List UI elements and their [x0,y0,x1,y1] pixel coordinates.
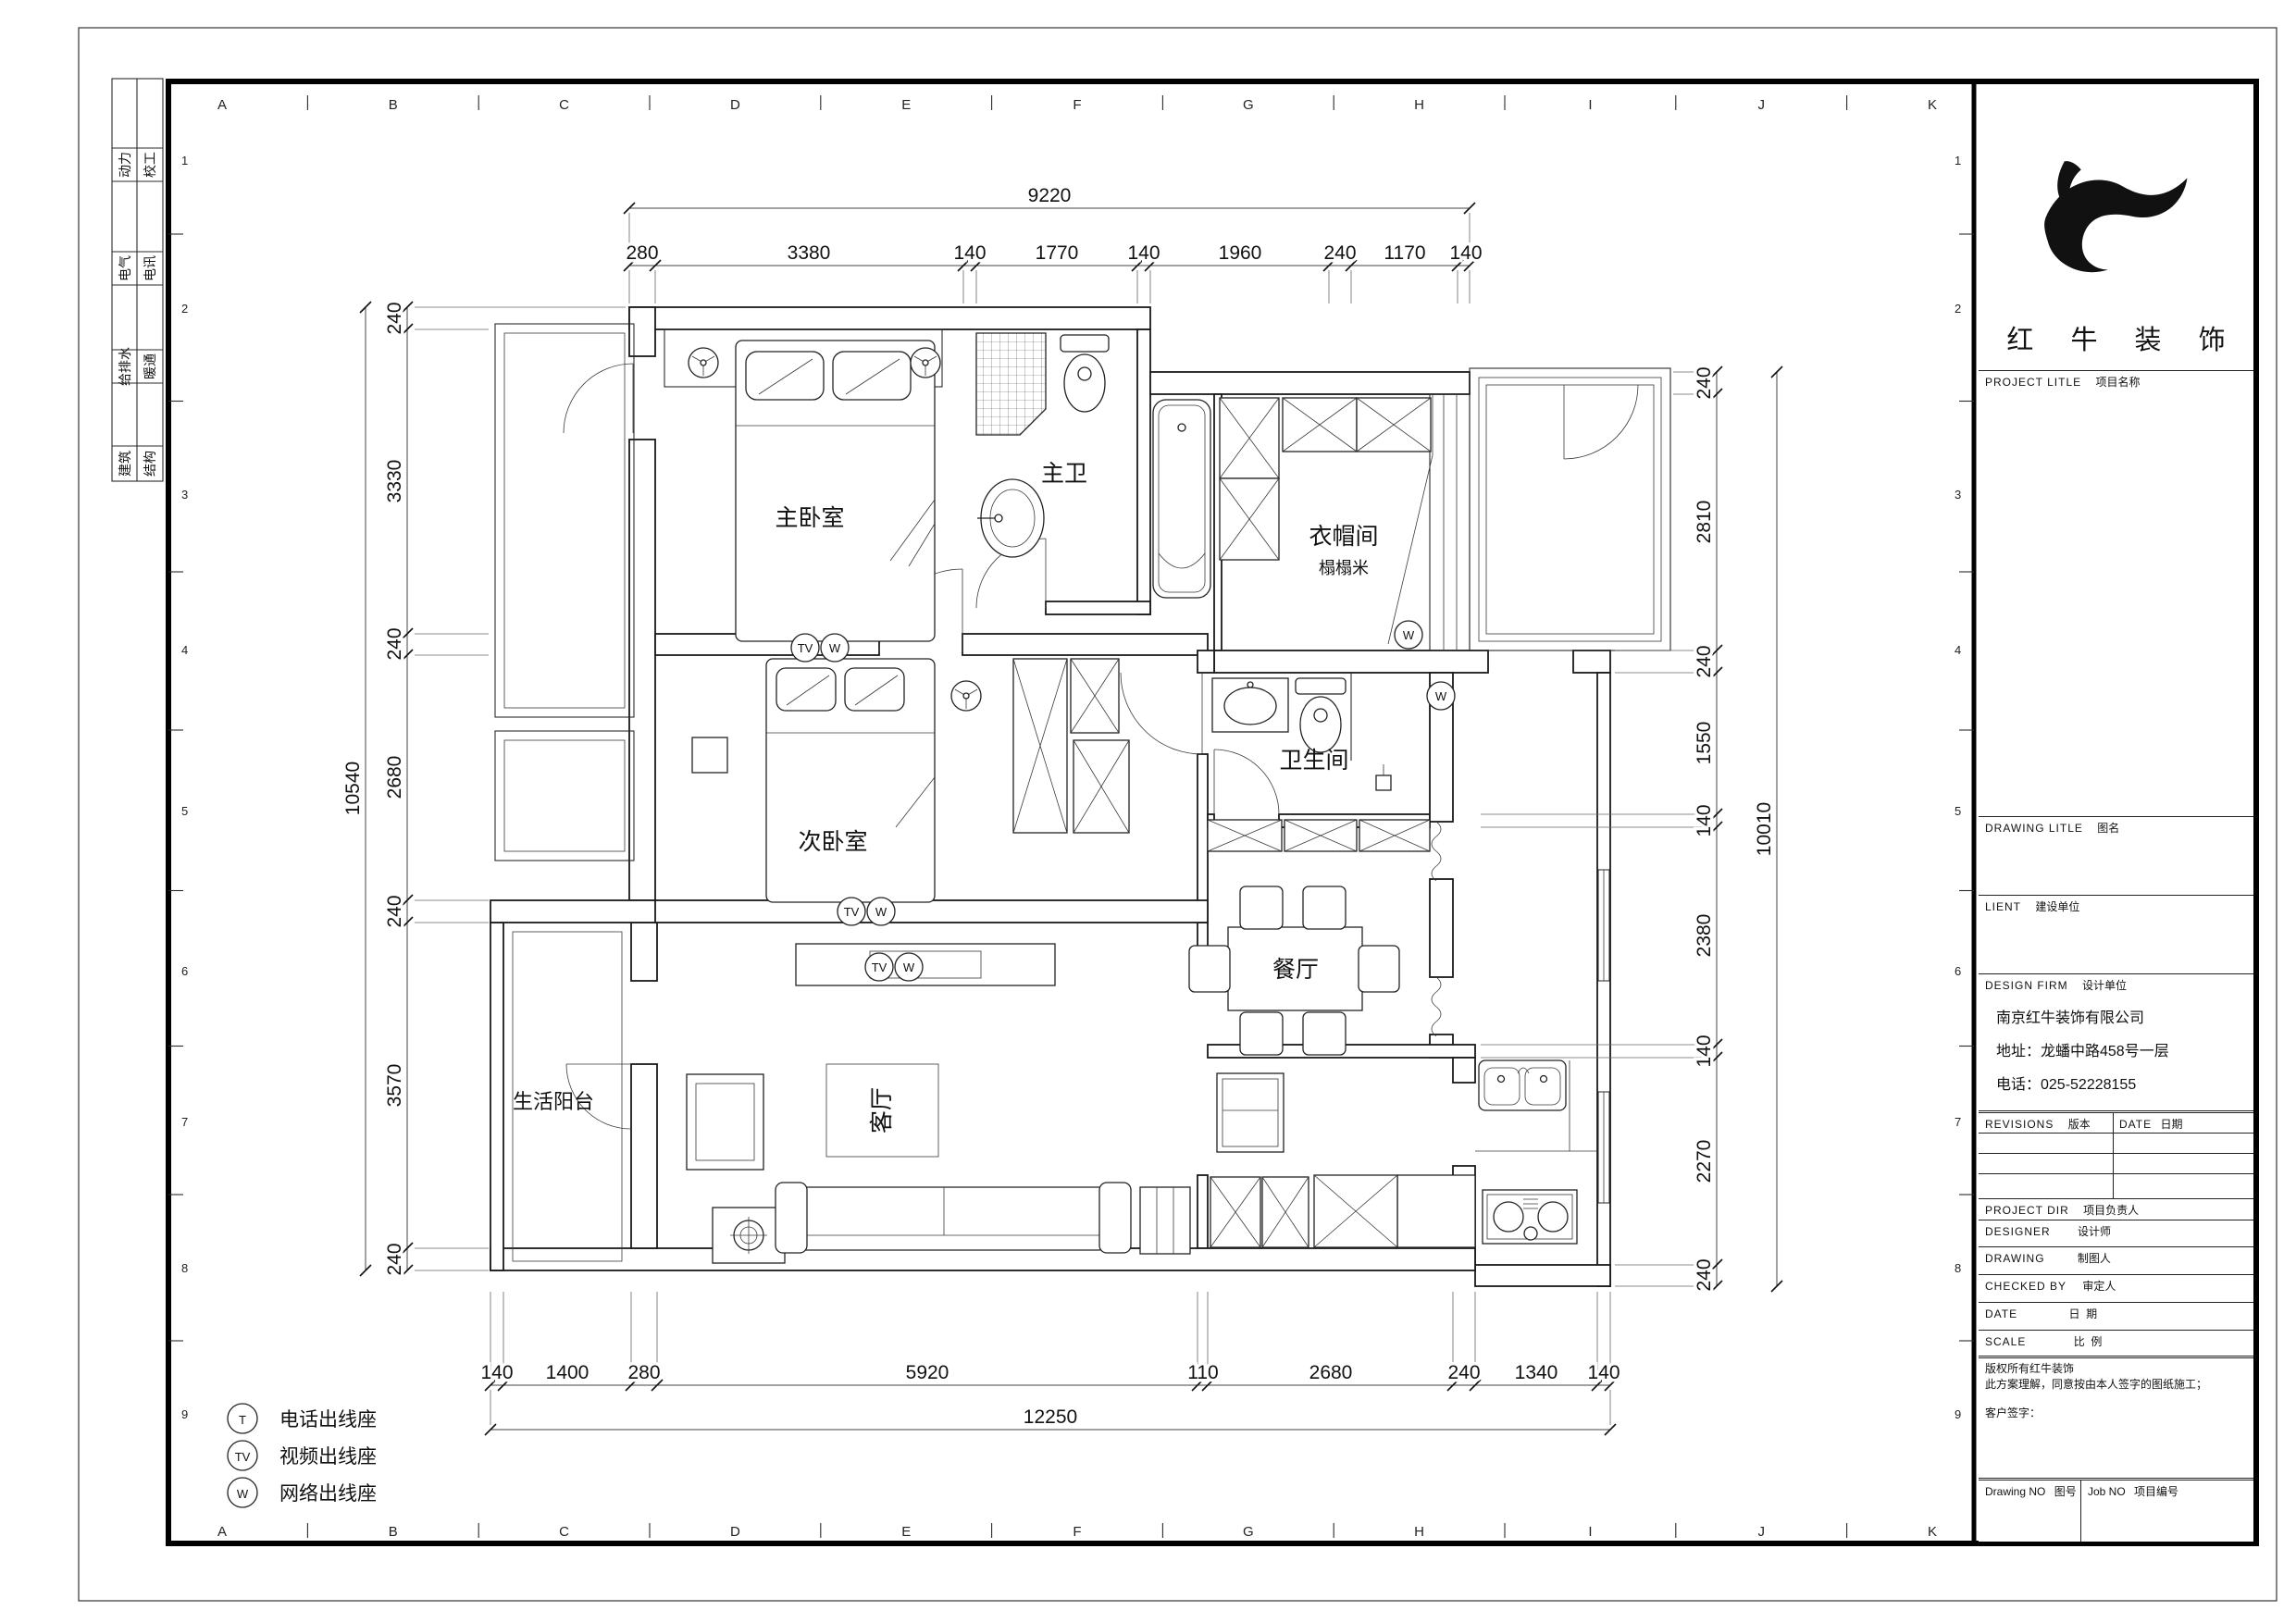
revisions-zh: 版本 [2068,1118,2091,1131]
room-label-tatami: 榻榻米 [1319,559,1369,577]
project-title-en: PROJECT LITLE [1985,376,2081,389]
firm-name: 南京红牛装饰有限公司 [1996,1002,2247,1035]
dim: 2810 [1694,501,1715,544]
dim: 1960 [1219,242,1262,264]
grid-number: 5 [1955,804,1961,818]
ceiling-fan-icon [911,348,940,378]
grid-letter: G [1243,1524,1254,1540]
dim: 140 [1449,242,1482,264]
dim: 280 [627,1362,660,1383]
chair [1189,946,1230,992]
project-title-cell: PROJECT LITLE 项目名称 [1979,370,2253,816]
wall [1137,329,1150,614]
dim: 280 [626,242,658,264]
drawing-no-zh: 图号 [2054,1485,2077,1498]
dim: 140 [953,242,986,264]
grid-letter: G [1243,97,1254,113]
grid-letter: E [901,1524,911,1540]
grid-number: 9 [181,1407,188,1421]
cabinet-xbox [1208,820,1282,851]
grid-number: 2 [181,302,188,316]
room-label-bathroom: 卫生间 [1279,748,1348,774]
dim: 140 [1587,1362,1620,1383]
room-label-dining: 餐厅 [1272,957,1319,983]
window-wall [1430,394,1470,650]
counter [1397,1175,1475,1247]
legend-symbol-text: W [237,1487,249,1501]
door-bathroom [1214,750,1279,814]
dim: 3570 [384,1064,405,1108]
dim: 1400 [546,1362,590,1383]
dim: 140 [1127,242,1160,264]
master-bed [736,341,935,641]
drawing-by-zh: 制图人 [2078,1252,2111,1265]
discipline-label: 暖通 [143,353,157,379]
second-bed [766,659,935,902]
grid-number: 4 [181,643,188,657]
bay-window-lower-inner [504,740,625,851]
dim: 3380 [788,242,831,264]
tv-console [796,944,1055,985]
grid-number: 7 [181,1115,188,1129]
outlet-label: TV [798,641,813,655]
outlet-w-icon: W [1427,682,1455,710]
wall [631,923,657,981]
dim: 240 [1447,1362,1480,1383]
designer-zh: 设计师 [2078,1225,2111,1238]
dim: 1770 [1036,242,1079,264]
chair [1359,946,1399,992]
grid-number: 1 [181,154,188,167]
curtain-symbol [1432,822,1441,881]
legend-label: 电话出线座 [279,1409,377,1431]
wall [1046,601,1150,614]
dim: 240 [1323,242,1356,264]
nightstand [692,737,727,773]
drawing-no-cell: Drawing NO 图号 Job NO 项目编号 [1979,1478,2253,1542]
bay-window-upper-inner [504,333,625,708]
bay-window-lower [495,731,634,861]
checked-by-zh: 审定人 [2082,1280,2116,1293]
copyright-line1: 版权所有红牛装饰 [1985,1361,2247,1377]
job-no-zh: 项目编号 [2134,1485,2178,1498]
outlet-label: W [829,641,841,655]
cabinet [687,1074,763,1170]
revisions-en: REVISIONS [1985,1118,2054,1131]
discipline-label: 动力 [118,152,132,178]
grid-number: 4 [1955,643,1961,657]
dim-bottom-total: 12250 [1024,1406,1077,1428]
designer-en: DESIGNER [1985,1225,2051,1238]
outlet-w-icon: W [1395,621,1422,649]
dim: 140 [1694,804,1715,836]
wall [1475,1265,1610,1286]
discipline-label: 电气 [118,255,132,281]
cabinet-xbox [1314,1175,1397,1247]
grid-number: 8 [181,1261,188,1275]
outlet-label: W [875,905,887,919]
client-cell: LIENT 建设单位 [1979,895,2253,973]
bathtub [1153,400,1210,598]
revisions-header: REVISIONS 版本 DATE 日期 [1979,1110,2253,1133]
title-block: 红 牛 装 饰 PROJECT LITLE 项目名称 DRAWING LITLE… [1979,87,2253,1542]
ceiling-fan-icon [951,681,981,711]
outlet-label: TV [872,960,887,974]
shower-drain [1376,775,1391,790]
grid-number: 6 [181,964,188,978]
drawing-title-en: DRAWING LITLE [1985,822,2083,835]
scale-row-en: SCALE [1985,1335,2026,1348]
dim: 5920 [906,1362,949,1383]
wall [631,1064,657,1248]
dim: 240 [384,627,405,660]
dim: 2380 [1694,914,1715,958]
wall [1150,372,1470,394]
discipline-label: 校工 [143,152,157,178]
dim: 2680 [1309,1362,1353,1383]
outlet-label: W [1403,628,1415,642]
legend-label: 视频出线座 [279,1446,377,1468]
outlet-w-icon: W [867,898,895,925]
copyright-line2: 此方案理解，同意按由本人签字的图纸施工； [1985,1377,2247,1393]
project-dir-zh: 项目负责人 [2083,1204,2139,1217]
discipline-strip: 动力 校工 电气 电讯 给排水 暖通 建筑 结构 [112,79,163,481]
grid-letter: J [1757,1524,1765,1540]
door-terrace [1564,385,1638,459]
grid-number: 3 [181,488,188,502]
room-label-living: 客厅 [869,1087,895,1134]
grid-letter: F [1073,1524,1081,1540]
chair [1240,1012,1283,1055]
dim: 240 [384,1243,405,1275]
room-label-balcony: 生活阳台 [513,1090,594,1113]
project-dir-en: PROJECT DIR [1985,1204,2069,1217]
drawing-title-zh: 图名 [2097,822,2119,835]
date-cell: DATE 日 期 [1979,1302,2253,1330]
outlet-tv-icon: TV [791,634,819,662]
revision-row [1979,1173,2253,1198]
grid-letter: K [1928,1524,1937,1540]
date-col-en: DATE [2119,1118,2152,1131]
wall [1198,754,1208,923]
kitchen-fixtures [1468,1060,1597,1244]
cabinet-xbox [1210,1177,1260,1247]
wall [1214,650,1488,673]
legend: T 电话出线座 TV 视频出线座 W 网络出线座 [228,1404,377,1507]
cabinet-xbox [1220,398,1279,478]
scale-cell: SCALE 比 例 [1979,1330,2253,1356]
wall [1430,879,1453,977]
dim: 3330 [384,460,405,503]
room-label-cloakroom: 衣帽间 [1309,524,1378,550]
grid-letter: B [389,1524,398,1540]
grid-letter: D [730,1524,740,1540]
copyright-cell: 版权所有红牛装饰 此方案理解，同意按由本人签字的图纸施工； 客户签字： [1979,1356,2253,1478]
drawing-by-en: DRAWING [1985,1252,2045,1265]
wall [1198,650,1214,673]
fridge [1217,1073,1284,1152]
company-name: 红 牛 装 饰 [1992,318,2240,357]
discipline-label: 给排水 [118,347,132,386]
dim: 240 [384,302,405,334]
project-dir-cell: PROJECT DIR 项目负责人 [1979,1198,2253,1220]
grid-letter: E [901,97,911,113]
firm-phone: 电话：025-52228155 [1996,1069,2247,1102]
toilet [1061,335,1109,412]
checked-by-en: CHECKED BY [1985,1280,2066,1293]
cabinet-xbox [1357,398,1431,452]
chair [1303,886,1346,929]
ceiling-fan-icon [689,348,718,378]
client-signature-label: 客户签字： [1985,1406,2247,1421]
dim: 2270 [1694,1140,1715,1183]
outlet-label: W [903,960,915,974]
grid-letter: A [217,1524,227,1540]
wall [490,1248,1475,1270]
date-col-zh: 日期 [2160,1118,2182,1131]
dim: 140 [1694,1035,1715,1067]
client-en: LIENT [1985,900,2021,913]
grid-letter: C [559,97,569,113]
wall [629,440,655,900]
grid-number: 2 [1955,302,1961,316]
design-firm-cell: DESIGN FIRM 设计单位 南京红牛装饰有限公司 地址：龙蟠中路458号一… [1979,973,2253,1110]
terrace-rail [1479,378,1661,641]
scale-row-zh: 比 例 [2074,1335,2103,1348]
door-second-bedroom [1121,673,1202,754]
grid-letter: I [1588,1524,1592,1540]
dim: 140 [480,1362,513,1383]
sofa [776,1183,1131,1253]
outlet-label: TV [844,905,860,919]
outlet-w-icon: W [895,953,923,981]
firm-address: 地址：龙蟠中路458号一层 [1996,1035,2247,1069]
dim: 1550 [1694,722,1715,765]
grid-letter: B [389,97,398,113]
chair [1240,886,1283,929]
company-logo-icon [2033,155,2200,294]
wall [655,900,1208,923]
drawing-by-cell: DRAWING 制图人 [1979,1246,2253,1274]
grid-letter: F [1073,97,1081,113]
wall [1453,1058,1475,1083]
wall [629,307,655,356]
dim: 240 [1694,366,1715,399]
grid-letter: K [1928,97,1937,113]
cabinet-xbox [1071,659,1119,733]
bay-window-upper [495,324,634,717]
revision-row [1979,1153,2253,1173]
date-row-zh: 日 期 [2068,1307,2097,1320]
legend-label: 网络出线座 [279,1483,377,1505]
revision-row [1979,1133,2253,1153]
dim: 1170 [1384,242,1425,264]
discipline-label: 结构 [143,451,157,477]
living-room-furniture [687,944,1190,1263]
grid-letter: I [1588,97,1592,113]
drawing-no-en: Drawing NO [1985,1485,2045,1498]
cabinet-xbox [1013,659,1067,833]
cabinet-xbox [1283,398,1357,452]
side-table [713,1208,785,1263]
drawing-sheet: 动力 校工 电气 电讯 给排水 暖通 建筑 结构 AABBCCDDEEFFGGH… [0,0,2296,1623]
cabinet-xbox [1359,820,1430,851]
grid-number: 7 [1955,1115,1961,1129]
grid-letter: J [1757,97,1765,113]
dim-top-total: 9220 [1028,185,1072,206]
shower-area [976,333,1046,435]
grid-number: 8 [1955,1261,1961,1275]
wall [490,923,503,1270]
grid-letter: H [1414,97,1424,113]
legend-symbol-text: T [239,1413,246,1427]
client-zh: 建设单位 [2035,900,2079,913]
curtain-symbol [1432,977,1441,1036]
grid-number: 6 [1955,964,1961,978]
cabinet-xbox [1285,820,1357,851]
outlet-tv-icon: TV [865,953,893,981]
floorplan-svg: 动力 校工 电气 电讯 给排水 暖通 建筑 结构 AABBCCDDEEFFGGH… [0,0,2296,1623]
cabinet-xbox [1074,740,1129,833]
grid-letter: H [1414,1524,1424,1540]
grid-number: 9 [1955,1407,1961,1421]
basin [1224,688,1276,725]
dim-left-total: 10540 [342,762,364,815]
dim: 240 [1694,645,1715,677]
designer-cell: DESIGNER 设计师 [1979,1220,2253,1246]
cabinet-xbox [1220,478,1279,560]
terrace-rail [1486,385,1654,634]
drawing-title-cell: DRAWING LITLE 图名 [1979,816,2253,895]
grid-letter: D [730,97,740,113]
wash-basin [977,479,1044,557]
wall [629,307,1150,329]
chair [1303,1012,1346,1055]
dim-right-total: 10010 [1754,802,1775,856]
company-logo-cell: 红 牛 装 饰 [1979,87,2253,370]
project-title-zh: 项目名称 [2095,376,2140,389]
grid-number: 1 [1955,154,1961,167]
end-table [1140,1187,1190,1254]
outlet-w-icon: W [821,634,849,662]
outlet-tv-icon: TV [838,898,865,925]
date-row-en: DATE [1985,1307,2017,1320]
discipline-label: 建筑 [118,451,132,477]
wall [962,634,1208,655]
design-firm-en: DESIGN FIRM [1985,979,2068,992]
outlet-label: W [1435,689,1447,703]
design-firm-zh: 设计单位 [2082,979,2127,992]
checked-by-cell: CHECKED BY 审定人 [1979,1274,2253,1302]
wall [1198,1175,1208,1248]
dim: 1340 [1515,1362,1558,1383]
dim: 240 [384,895,405,927]
discipline-label: 电讯 [143,255,157,281]
dim: 240 [1694,1258,1715,1291]
job-no-en: Job NO [2088,1485,2126,1498]
cabinet-xbox [1262,1177,1309,1247]
dim: 2680 [384,756,405,799]
stove [1468,1190,1577,1244]
terrace-outline [1470,368,1670,650]
dim: 110 [1187,1362,1218,1383]
grid-number: 3 [1955,488,1961,502]
wall [1573,650,1610,673]
door-bay [564,364,633,433]
toilet [1296,678,1346,752]
room-label-second-bedroom: 次卧室 [798,829,867,855]
room-label-master-bath: 主卫 [1041,461,1087,487]
wall [490,900,657,923]
legend-symbol-text: TV [235,1450,251,1464]
kitchen-sink [1479,1060,1566,1110]
room-label-master-bedroom: 主卧室 [775,505,844,531]
sheet-frame [79,28,2277,1601]
grid-letter: C [559,1524,569,1540]
grid-number: 5 [181,804,188,818]
grid-letter: A [217,97,227,113]
